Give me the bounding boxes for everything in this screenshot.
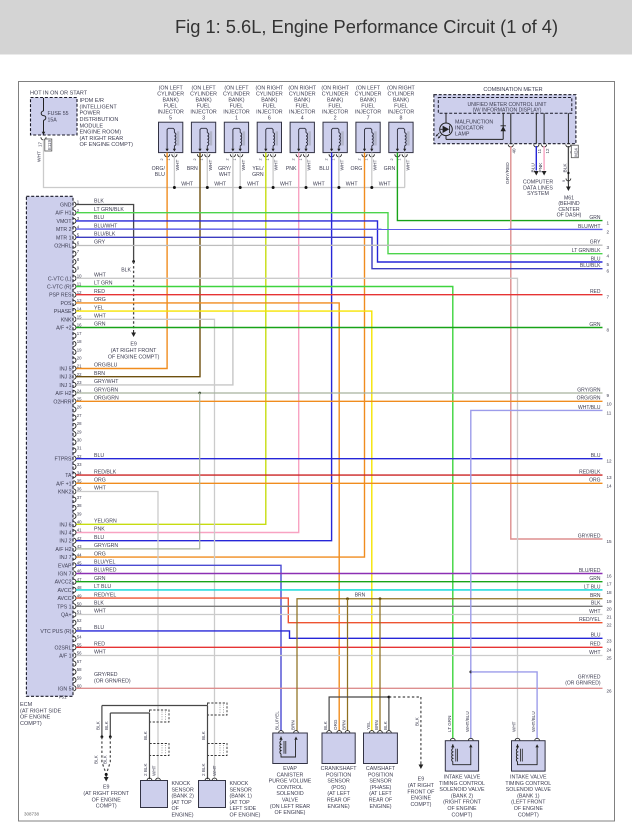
svg-text:13: 13: [607, 475, 613, 480]
svg-text:OF ENGINE: OF ENGINE: [514, 806, 544, 812]
svg-text:15: 15: [607, 539, 613, 544]
svg-text:(BANK 1): (BANK 1): [230, 794, 253, 800]
svg-text:27: 27: [77, 413, 82, 418]
svg-text:A/F +2: A/F +2: [56, 326, 72, 332]
svg-text:YEL/: YEL/: [252, 166, 264, 172]
svg-text:A/F +1: A/F +1: [56, 481, 72, 487]
svg-text:VTC PUS (R): VTC PUS (R): [40, 629, 71, 635]
svg-text:2: 2: [160, 158, 164, 160]
svg-text:21: 21: [607, 615, 613, 620]
svg-text:ENGINE): ENGINE): [328, 804, 350, 810]
svg-text:29: 29: [77, 429, 82, 434]
svg-text:44: 44: [77, 552, 82, 557]
svg-text:BRN: BRN: [342, 720, 347, 730]
svg-text:39: 39: [77, 511, 82, 516]
svg-text:KNK2: KNK2: [58, 490, 72, 496]
svg-text:CAMSHAFT: CAMSHAFT: [366, 766, 396, 772]
svg-text:GRN: GRN: [589, 215, 601, 221]
svg-text:POSITION: POSITION: [368, 772, 393, 778]
svg-text:5: 5: [169, 116, 172, 122]
svg-text:A/F H2: A/F H2: [55, 391, 71, 397]
svg-text:18: 18: [77, 339, 82, 344]
svg-text:38: 38: [77, 503, 82, 508]
svg-text:PSP RES: PSP RES: [49, 293, 72, 299]
svg-text:PURGE VOLUME: PURGE VOLUME: [269, 779, 312, 785]
svg-text:WHT: WHT: [241, 160, 247, 171]
svg-text:GRY/RED: GRY/RED: [505, 162, 511, 184]
svg-text:E9: E9: [418, 777, 425, 783]
svg-text:OF ENGINE): OF ENGINE): [230, 813, 261, 819]
svg-text:(POS): (POS): [331, 785, 346, 791]
svg-text:BRN: BRN: [94, 371, 105, 377]
svg-text:2 BLK: 2 BLK: [201, 763, 206, 776]
svg-text:COMBINATION METER: COMBINATION METER: [483, 87, 542, 93]
svg-text:E9: E9: [130, 342, 137, 348]
svg-text:21: 21: [77, 364, 82, 369]
svg-text:(BANK 1): (BANK 1): [517, 793, 540, 799]
svg-text:54: 54: [77, 634, 82, 639]
svg-text:YEL: YEL: [366, 721, 371, 730]
svg-text:2: 2: [334, 116, 337, 122]
svg-text:Fig 1: 5.6L, Engine Performanc: Fig 1: 5.6L, Engine Performance Circuit …: [175, 16, 558, 37]
svg-text:FRONT OF: FRONT OF: [407, 789, 435, 795]
svg-text:WHT: WHT: [589, 609, 600, 615]
svg-text:INJ 4: INJ 4: [59, 531, 71, 537]
svg-text:4: 4: [301, 116, 304, 122]
svg-text:GRN: GRN: [589, 576, 601, 582]
svg-text:BLK: BLK: [383, 720, 388, 730]
svg-text:TIMING CONTROL: TIMING CONTROL: [439, 781, 485, 787]
svg-text:WHT: WHT: [208, 160, 214, 171]
svg-text:BLU/BLK: BLU/BLK: [580, 263, 601, 269]
svg-text:OF ENGINE COMPT): OF ENGINE COMPT): [80, 142, 134, 148]
svg-text:37: 37: [77, 495, 82, 500]
svg-text:SENSOR: SENSOR: [369, 779, 392, 785]
svg-text:2 BLK: 2 BLK: [143, 763, 148, 776]
svg-text:WHT: WHT: [589, 650, 600, 656]
svg-text:VMOT: VMOT: [57, 219, 73, 225]
svg-text:TPS 1: TPS 1: [57, 604, 72, 610]
svg-text:INJ 7: INJ 7: [59, 555, 71, 561]
svg-text:PNK: PNK: [94, 527, 105, 533]
svg-text:WHT: WHT: [274, 160, 280, 171]
svg-text:BLK: BLK: [591, 601, 601, 607]
svg-text:40: 40: [512, 148, 517, 154]
svg-text:OF ENGINE: OF ENGINE: [20, 715, 51, 721]
svg-text:2: 2: [292, 158, 296, 160]
svg-text:PNK: PNK: [286, 166, 297, 172]
svg-text:QA+: QA+: [61, 613, 72, 619]
svg-text:ECM: ECM: [20, 702, 33, 708]
svg-text:MTR 2: MTR 2: [56, 227, 72, 233]
svg-text:(AT RIGHT REAR: (AT RIGHT REAR: [80, 136, 124, 142]
svg-text:GRN: GRN: [252, 172, 264, 178]
svg-text:(PHASE): (PHASE): [370, 785, 392, 791]
svg-text:17: 17: [38, 141, 43, 147]
svg-text:15A: 15A: [48, 117, 58, 123]
svg-text:(LEFT FRONT: (LEFT FRONT: [511, 800, 546, 806]
svg-text:WHT: WHT: [512, 721, 517, 732]
svg-text:2: 2: [607, 229, 610, 234]
svg-text:(AT TOP: (AT TOP: [172, 800, 193, 806]
svg-text:GND: GND: [60, 203, 72, 209]
svg-text:9: 9: [561, 179, 566, 182]
svg-text:WHT: WHT: [94, 650, 107, 656]
svg-text:OF ENGINE): OF ENGINE): [275, 810, 306, 816]
svg-text:BLK: BLK: [323, 720, 328, 730]
svg-text:WHT: WHT: [94, 486, 107, 492]
svg-text:BLK: BLK: [94, 199, 104, 205]
svg-text:GRY: GRY: [590, 240, 601, 246]
svg-text:BLK: BLK: [93, 754, 98, 764]
svg-text:A/F 1: A/F 1: [59, 654, 72, 660]
svg-text:BLU: BLU: [94, 625, 104, 631]
svg-text:LT GRN/BLK: LT GRN/BLK: [572, 248, 601, 254]
svg-text:INTAKE VALVE: INTAKE VALVE: [444, 775, 481, 781]
svg-text:WHT: WHT: [405, 160, 411, 171]
svg-text:(AT LEFT: (AT LEFT: [369, 791, 392, 797]
svg-text:BLK: BLK: [102, 754, 107, 764]
svg-text:M24: M24: [573, 148, 578, 157]
svg-text:PHASE: PHASE: [54, 309, 72, 315]
svg-text:1: 1: [607, 221, 610, 226]
svg-text:(AT RIGHT: (AT RIGHT: [408, 783, 435, 789]
svg-text:ENGINE: ENGINE: [411, 796, 432, 802]
svg-text:6: 6: [268, 116, 271, 122]
svg-text:ORG/GRN: ORG/GRN: [577, 396, 601, 402]
svg-text:GRY/WHT: GRY/WHT: [94, 379, 119, 385]
svg-text:ENGINE ROOM): ENGINE ROOM): [80, 130, 122, 136]
svg-text:A/F H1: A/F H1: [55, 211, 71, 217]
svg-text:18: 18: [607, 590, 613, 595]
svg-text:WHT: WHT: [212, 765, 217, 776]
svg-text:O2HRL: O2HRL: [54, 244, 71, 250]
svg-text:GRN: GRN: [384, 166, 396, 172]
svg-text:SENSOR: SENSOR: [230, 787, 253, 793]
svg-text:WHT: WHT: [94, 609, 107, 615]
svg-text:7: 7: [77, 249, 80, 254]
svg-text:HOT IN ON OR START: HOT IN ON OR START: [30, 91, 88, 97]
svg-text:28: 28: [77, 421, 82, 426]
svg-text:33: 33: [77, 462, 82, 467]
svg-text:12: 12: [545, 148, 550, 154]
svg-text:GRY/RED: GRY/RED: [578, 533, 601, 539]
svg-text:WHT: WHT: [219, 172, 232, 178]
svg-text:2: 2: [259, 158, 263, 160]
svg-text:BLK: BLK: [104, 720, 109, 730]
svg-text:RED: RED: [590, 289, 601, 295]
svg-text:4: 4: [607, 254, 610, 259]
svg-text:(BANK 2): (BANK 2): [451, 793, 474, 799]
svg-text:COMPT): COMPT): [518, 812, 539, 818]
svg-text:12: 12: [607, 459, 613, 464]
svg-text:IGN 7: IGN 7: [58, 572, 72, 578]
svg-text:22: 22: [607, 623, 613, 628]
svg-text:BRN: BRN: [291, 720, 296, 730]
svg-text:(ON LEFT REAR: (ON LEFT REAR: [270, 804, 310, 810]
svg-text:OF ENGINE: OF ENGINE: [92, 797, 122, 803]
svg-text:O2HRR: O2HRR: [53, 399, 71, 405]
svg-text:GRY/GRN: GRY/GRN: [577, 387, 601, 393]
svg-text:FUSE 55: FUSE 55: [48, 111, 69, 117]
svg-text:19: 19: [607, 599, 613, 604]
svg-text:59: 59: [77, 675, 82, 680]
svg-text:BLU: BLU: [591, 633, 601, 639]
svg-text:WHT: WHT: [379, 182, 392, 188]
svg-text:WHT: WHT: [214, 182, 227, 188]
svg-text:IGN 5: IGN 5: [58, 686, 72, 692]
svg-text:BLU: BLU: [155, 172, 165, 178]
svg-text:MODULE: MODULE: [80, 123, 104, 129]
svg-text:3: 3: [202, 116, 205, 122]
svg-text:BLU: BLU: [94, 535, 104, 541]
svg-text:GRY/RED: GRY/RED: [94, 672, 118, 678]
svg-text:7: 7: [367, 116, 370, 122]
svg-text:TA: TA: [65, 473, 72, 479]
svg-text:BLK: BLK: [95, 720, 100, 730]
svg-text:2: 2: [390, 158, 394, 160]
svg-text:BLK: BLK: [143, 730, 148, 740]
svg-text:OF ENGINE COMPT): OF ENGINE COMPT): [108, 354, 160, 360]
svg-text:BRN: BRN: [187, 166, 198, 172]
svg-text:WHT: WHT: [152, 765, 157, 776]
svg-text:(OR GRN/RED): (OR GRN/RED): [94, 678, 131, 684]
svg-text:KNOCK: KNOCK: [172, 781, 191, 787]
svg-text:BLK: BLK: [201, 730, 206, 740]
svg-text:BRN: BRN: [374, 720, 379, 730]
svg-text:(AT LEFT: (AT LEFT: [327, 791, 350, 797]
svg-text:16: 16: [607, 574, 613, 579]
svg-text:INJ 5: INJ 5: [59, 367, 71, 373]
svg-text:EVAP: EVAP: [58, 563, 72, 569]
svg-text:C-VTC (R): C-VTC (R): [47, 285, 72, 291]
svg-text:POSITION: POSITION: [326, 772, 351, 778]
svg-text:3: 3: [607, 245, 610, 250]
svg-text:RED/BLK: RED/BLK: [579, 470, 601, 476]
svg-text:10: 10: [607, 401, 613, 406]
svg-text:WHT: WHT: [346, 182, 359, 188]
svg-text:INJ 2: INJ 2: [59, 539, 71, 545]
svg-text:WHT/BLU: WHT/BLU: [531, 711, 536, 732]
svg-text:WHT: WHT: [247, 182, 260, 188]
svg-text:14: 14: [607, 483, 613, 488]
svg-text:26: 26: [607, 688, 613, 693]
svg-text:19: 19: [77, 347, 82, 352]
svg-text:REAR OF: REAR OF: [327, 798, 351, 804]
svg-text:9: 9: [607, 393, 610, 398]
svg-text:5: 5: [607, 262, 610, 267]
svg-text:OF DASH): OF DASH): [557, 213, 582, 219]
svg-text:(INTELLIGENT: (INTELLIGENT: [80, 104, 118, 110]
svg-text:ORG/: ORG/: [152, 166, 166, 172]
svg-text:INJ 6: INJ 6: [59, 522, 71, 528]
svg-text:52: 52: [77, 618, 82, 623]
svg-text:1: 1: [235, 116, 238, 122]
svg-text:KNOCK: KNOCK: [230, 781, 249, 787]
svg-text:DISTRIBUTION: DISTRIBUTION: [80, 117, 119, 123]
svg-text:1: 1: [200, 158, 204, 160]
svg-text:1: 1: [233, 158, 237, 160]
svg-text:58: 58: [77, 667, 82, 672]
svg-text:(AT RIGHT SIDE: (AT RIGHT SIDE: [20, 708, 62, 714]
svg-text:AVCC: AVCC: [57, 596, 71, 602]
svg-text:OF: OF: [172, 806, 180, 812]
svg-text:BLU/WHT: BLU/WHT: [578, 224, 601, 230]
svg-text:8: 8: [77, 257, 80, 262]
svg-text:POS: POS: [61, 301, 72, 307]
svg-text:O2SRL: O2SRL: [54, 645, 71, 651]
svg-text:A/F H2: A/F H2: [55, 547, 71, 553]
svg-text:E119: E119: [47, 140, 52, 150]
svg-text:GRY/: GRY/: [218, 166, 231, 172]
svg-text:INJ 1: INJ 1: [59, 383, 71, 389]
svg-text:30: 30: [77, 438, 82, 443]
svg-text:WHT: WHT: [37, 151, 43, 162]
svg-text:MTR 1: MTR 1: [56, 235, 72, 241]
svg-text:ORG: ORG: [589, 478, 601, 484]
svg-text:(AT RIGHT FRONT: (AT RIGHT FRONT: [83, 791, 129, 797]
svg-text:AVCC2: AVCC2: [55, 580, 72, 586]
svg-text:2: 2: [357, 158, 361, 160]
svg-text:WHT: WHT: [313, 182, 326, 188]
svg-text:31: 31: [77, 446, 82, 451]
svg-text:42: 42: [77, 536, 82, 541]
svg-text:SYSTEM: SYSTEM: [527, 191, 549, 197]
svg-text:(AT RIGHT FRONT: (AT RIGHT FRONT: [111, 348, 157, 354]
svg-text:(OR GRN/RED): (OR GRN/RED): [565, 681, 601, 687]
svg-text:EVAP: EVAP: [283, 766, 297, 772]
svg-text:SENSOR: SENSOR: [172, 787, 195, 793]
svg-text:LT BLU: LT BLU: [94, 584, 111, 590]
svg-text:F51: F51: [59, 695, 67, 700]
svg-text:8: 8: [607, 328, 610, 333]
svg-text:23: 23: [77, 380, 82, 385]
svg-text:SOLENOID VALVE: SOLENOID VALVE: [506, 787, 552, 793]
svg-text:CONTROL: CONTROL: [277, 785, 303, 791]
svg-text:308738: 308738: [24, 812, 40, 817]
svg-text:LT GRN: LT GRN: [447, 716, 452, 732]
svg-text:BLK: BLK: [121, 268, 131, 274]
svg-text:ORG: ORG: [350, 166, 362, 172]
svg-text:BLU/WHT: BLU/WHT: [94, 223, 118, 229]
svg-text:SOLENOID: SOLENOID: [276, 791, 304, 797]
svg-text:CANISTER: CANISTER: [277, 772, 304, 778]
svg-text:ORG/BLU: ORG/BLU: [94, 363, 118, 369]
svg-text:AVCC: AVCC: [57, 588, 71, 594]
svg-text:41: 41: [77, 528, 82, 533]
svg-text:OF ENGINE: OF ENGINE: [447, 806, 477, 812]
svg-text:WHT: WHT: [280, 182, 293, 188]
svg-text:WHT: WHT: [175, 160, 181, 171]
svg-text:GRY/RED: GRY/RED: [578, 674, 601, 680]
svg-text:SENSOR: SENSOR: [327, 779, 350, 785]
svg-text:LEFT SIDE: LEFT SIDE: [230, 806, 257, 812]
svg-text:BLK: BLK: [562, 163, 568, 173]
svg-text:2: 2: [193, 158, 197, 160]
svg-text:6: 6: [607, 269, 610, 274]
svg-text:COMPT): COMPT): [410, 802, 431, 808]
svg-text:11: 11: [607, 410, 612, 415]
svg-text:BLU/RED: BLU/RED: [579, 568, 601, 574]
svg-text:ORG: ORG: [94, 551, 106, 557]
svg-text:BLU: BLU: [319, 166, 329, 172]
svg-text:ENGINE): ENGINE): [172, 813, 194, 819]
svg-text:WHT: WHT: [181, 182, 194, 188]
svg-text:E9: E9: [103, 785, 110, 791]
svg-text:8: 8: [399, 116, 402, 122]
svg-text:SOLENOID VALVE: SOLENOID VALVE: [439, 787, 485, 793]
svg-text:25: 25: [607, 656, 613, 661]
svg-text:WHT: WHT: [94, 314, 107, 320]
svg-text:WHT: WHT: [307, 160, 313, 171]
svg-text:(RIGHT FRONT: (RIGHT FRONT: [443, 800, 482, 806]
svg-text:20: 20: [77, 356, 82, 361]
svg-text:TIMING CONTROL: TIMING CONTROL: [505, 781, 551, 787]
svg-text:COMPT): COMPT): [452, 812, 473, 818]
svg-text:WHT: WHT: [372, 160, 378, 171]
svg-text:RED: RED: [590, 642, 601, 648]
svg-text:23: 23: [607, 638, 613, 643]
svg-text:17: 17: [607, 582, 613, 587]
svg-text:2: 2: [226, 158, 230, 160]
svg-text:20: 20: [607, 606, 613, 611]
svg-text:BRN: BRN: [355, 593, 366, 599]
svg-text:CRANKSHAFT: CRANKSHAFT: [321, 766, 358, 772]
svg-text:COMPT): COMPT): [20, 721, 42, 727]
svg-text:(BANK 2): (BANK 2): [172, 794, 195, 800]
svg-text:GRY/GRN: GRY/GRN: [94, 543, 118, 549]
svg-text:11: 11: [537, 148, 542, 153]
svg-text:YEL/GRN: YEL/GRN: [94, 519, 117, 525]
svg-text:ORG: ORG: [333, 719, 338, 730]
svg-text:7: 7: [607, 295, 610, 300]
svg-text:PNK: PNK: [538, 162, 544, 173]
svg-text:BLU: BLU: [591, 453, 601, 459]
svg-text:WHT: WHT: [340, 160, 346, 171]
svg-text:(AT TOP: (AT TOP: [230, 800, 251, 806]
svg-text:VALVE: VALVE: [282, 798, 299, 804]
svg-text:GRN: GRN: [589, 322, 601, 328]
svg-text:57: 57: [77, 659, 82, 664]
svg-text:POWER: POWER: [80, 111, 101, 117]
svg-text:INTAKE VALVE: INTAKE VALVE: [510, 775, 547, 781]
svg-text:LT BLU: LT BLU: [584, 584, 601, 590]
svg-text:C-VTC (L): C-VTC (L): [48, 276, 72, 282]
svg-text:ENGINE): ENGINE): [369, 804, 391, 810]
svg-text:REAR OF: REAR OF: [369, 798, 393, 804]
svg-text:22: 22: [77, 372, 82, 377]
svg-text:BLU: BLU: [591, 256, 601, 262]
svg-text:IPDM E/R: IPDM E/R: [80, 98, 104, 104]
svg-text:9: 9: [77, 265, 80, 270]
svg-text:26: 26: [77, 405, 82, 410]
svg-text:40: 40: [77, 520, 82, 525]
svg-text:WHT: WHT: [94, 273, 107, 279]
svg-text:FTPRS: FTPRS: [54, 457, 72, 463]
svg-text:BLU/YEL: BLU/YEL: [275, 711, 280, 730]
svg-text:(W/ INFORMATION DISPLAY): (W/ INFORMATION DISPLAY): [473, 107, 542, 113]
svg-text:BLK: BLK: [414, 716, 419, 726]
svg-text:17: 17: [77, 331, 82, 336]
svg-text:GRY: GRY: [94, 240, 106, 246]
svg-text:INJ 3: INJ 3: [59, 375, 71, 381]
svg-text:RED/YEL: RED/YEL: [579, 617, 601, 623]
svg-text:KNK: KNK: [61, 317, 72, 323]
svg-text:24: 24: [607, 647, 613, 652]
svg-text:2: 2: [324, 158, 328, 160]
svg-text:LAMP: LAMP: [455, 132, 470, 138]
svg-text:COMPT): COMPT): [96, 804, 117, 810]
